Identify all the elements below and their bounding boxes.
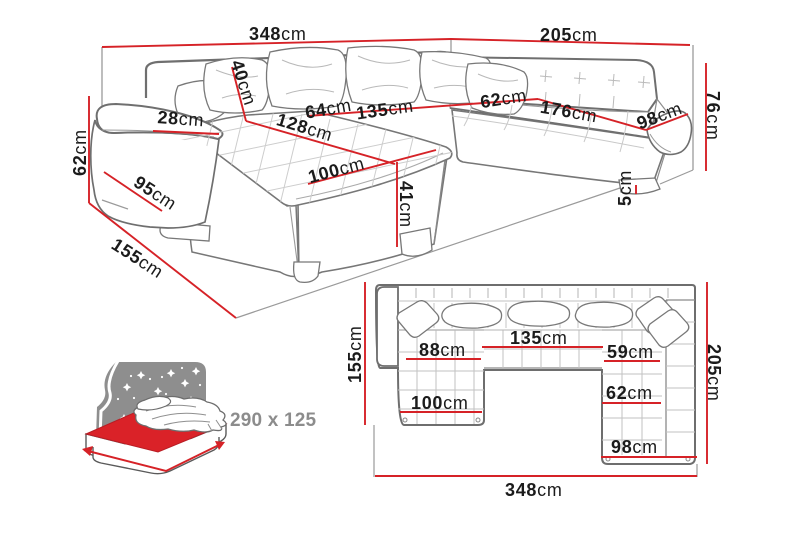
svg-text:205cm: 205cm: [540, 25, 598, 45]
svg-text:62cm: 62cm: [70, 129, 90, 176]
svg-text:98cm: 98cm: [611, 437, 658, 457]
svg-text:155cm: 155cm: [345, 325, 365, 383]
svg-text:290 x 125: 290 x 125: [230, 410, 317, 431]
svg-text:41cm: 41cm: [396, 181, 416, 228]
svg-text:88cm: 88cm: [419, 340, 466, 360]
svg-text:100cm: 100cm: [411, 393, 469, 413]
svg-text:135cm: 135cm: [510, 328, 568, 348]
svg-text:348cm: 348cm: [249, 24, 307, 44]
svg-text:205cm: 205cm: [704, 344, 724, 402]
svg-text:59cm: 59cm: [607, 342, 654, 362]
svg-text:348cm: 348cm: [505, 480, 563, 500]
svg-text:76cm: 76cm: [703, 91, 723, 141]
svg-text:28cm: 28cm: [157, 107, 205, 130]
svg-text:5cm: 5cm: [615, 170, 635, 206]
svg-text:62cm: 62cm: [606, 383, 653, 403]
